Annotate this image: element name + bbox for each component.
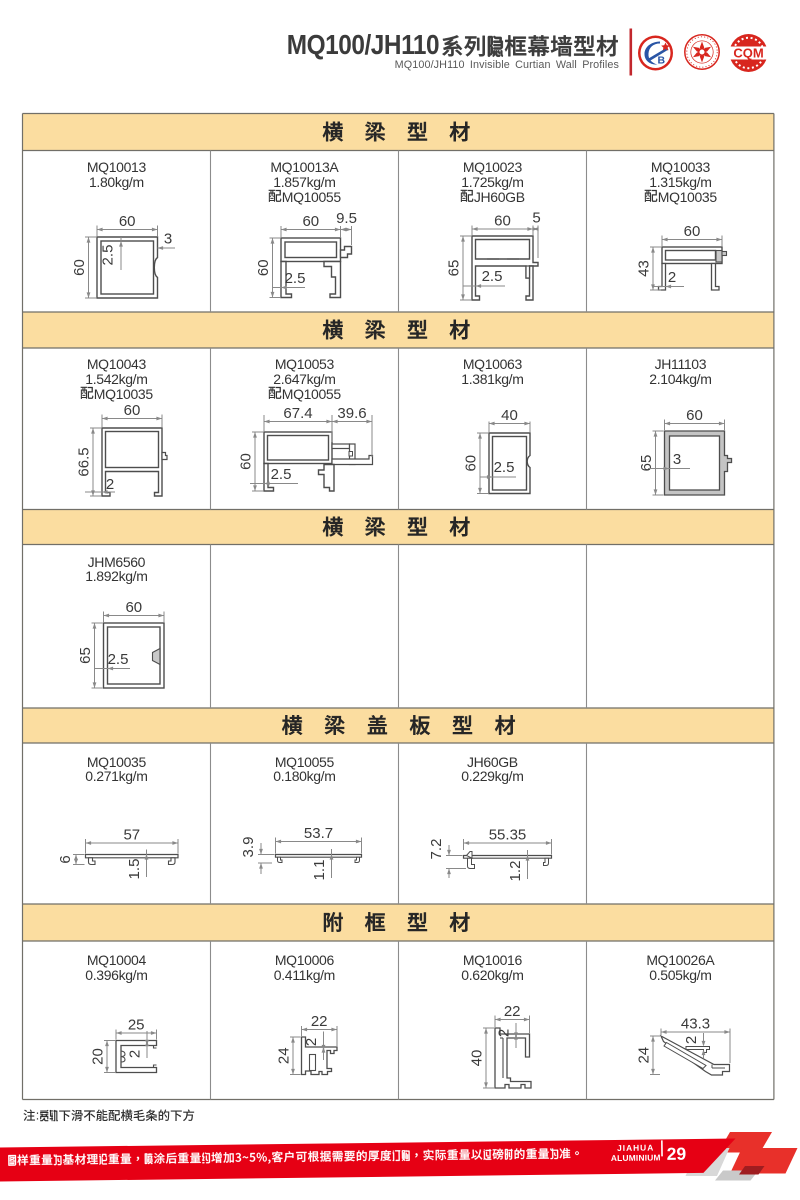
svg-text:2: 2 [496,1029,513,1037]
svg-text:1.5: 1.5 [126,859,143,880]
svg-text:29: 29 [667,1144,687,1164]
svg-text:60: 60 [463,455,480,472]
svg-text:CQM: CQM [733,46,763,61]
svg-text:40: 40 [501,407,518,424]
svg-text:60: 60 [302,213,319,230]
svg-text:ALUMINIUM: ALUMINIUM [611,1152,661,1163]
svg-text:7.2: 7.2 [428,839,445,860]
svg-text:2.5: 2.5 [285,270,306,287]
svg-text:43.3: 43.3 [681,1016,710,1033]
svg-text:B: B [658,55,666,67]
svg-text:6: 6 [57,855,74,863]
svg-text:2: 2 [127,1050,144,1058]
svg-text:60: 60 [71,259,88,276]
svg-text:2: 2 [303,1038,320,1046]
svg-text:60: 60 [125,599,142,616]
svg-text:2: 2 [683,1036,700,1044]
svg-text:2.5: 2.5 [482,268,503,285]
svg-text:2.5: 2.5 [494,459,515,476]
svg-text:5: 5 [532,210,540,227]
svg-text:1.1: 1.1 [311,860,328,881]
svg-text:1.2: 1.2 [507,861,524,882]
svg-text:22: 22 [311,1013,328,1030]
svg-text:2.5: 2.5 [100,245,117,266]
svg-text:60: 60 [238,453,255,470]
svg-text:2.5: 2.5 [271,466,292,483]
svg-text:60: 60 [255,259,272,276]
svg-text:55.35: 55.35 [489,827,527,844]
svg-text:3: 3 [673,451,681,468]
svg-text:24: 24 [636,1047,653,1064]
svg-text:67.4: 67.4 [283,405,312,422]
svg-text:65: 65 [446,260,463,277]
svg-text:9.5: 9.5 [336,210,357,227]
svg-text:20: 20 [90,1048,107,1065]
svg-text:60: 60 [119,213,136,230]
svg-text:JIAHUA: JIAHUA [617,1143,654,1153]
svg-text:66.5: 66.5 [76,447,93,476]
svg-text:65: 65 [77,647,94,664]
svg-text:40: 40 [469,1050,486,1067]
svg-text:39.6: 39.6 [337,405,366,422]
svg-text:57: 57 [123,827,140,844]
svg-text:2.5: 2.5 [108,651,129,668]
svg-text:43: 43 [636,260,653,277]
svg-text:24: 24 [276,1047,293,1064]
svg-text:3.9: 3.9 [240,837,257,858]
svg-text:3: 3 [164,231,172,248]
svg-text:22: 22 [504,1003,521,1020]
svg-text::: : [36,1109,39,1123]
svg-text:60: 60 [124,402,141,419]
svg-text:60: 60 [686,407,703,424]
svg-text:60: 60 [684,223,701,240]
svg-text:53.7: 53.7 [304,825,333,842]
svg-text:25: 25 [128,1017,145,1034]
svg-text:2: 2 [668,269,676,286]
svg-text:60: 60 [494,213,511,230]
